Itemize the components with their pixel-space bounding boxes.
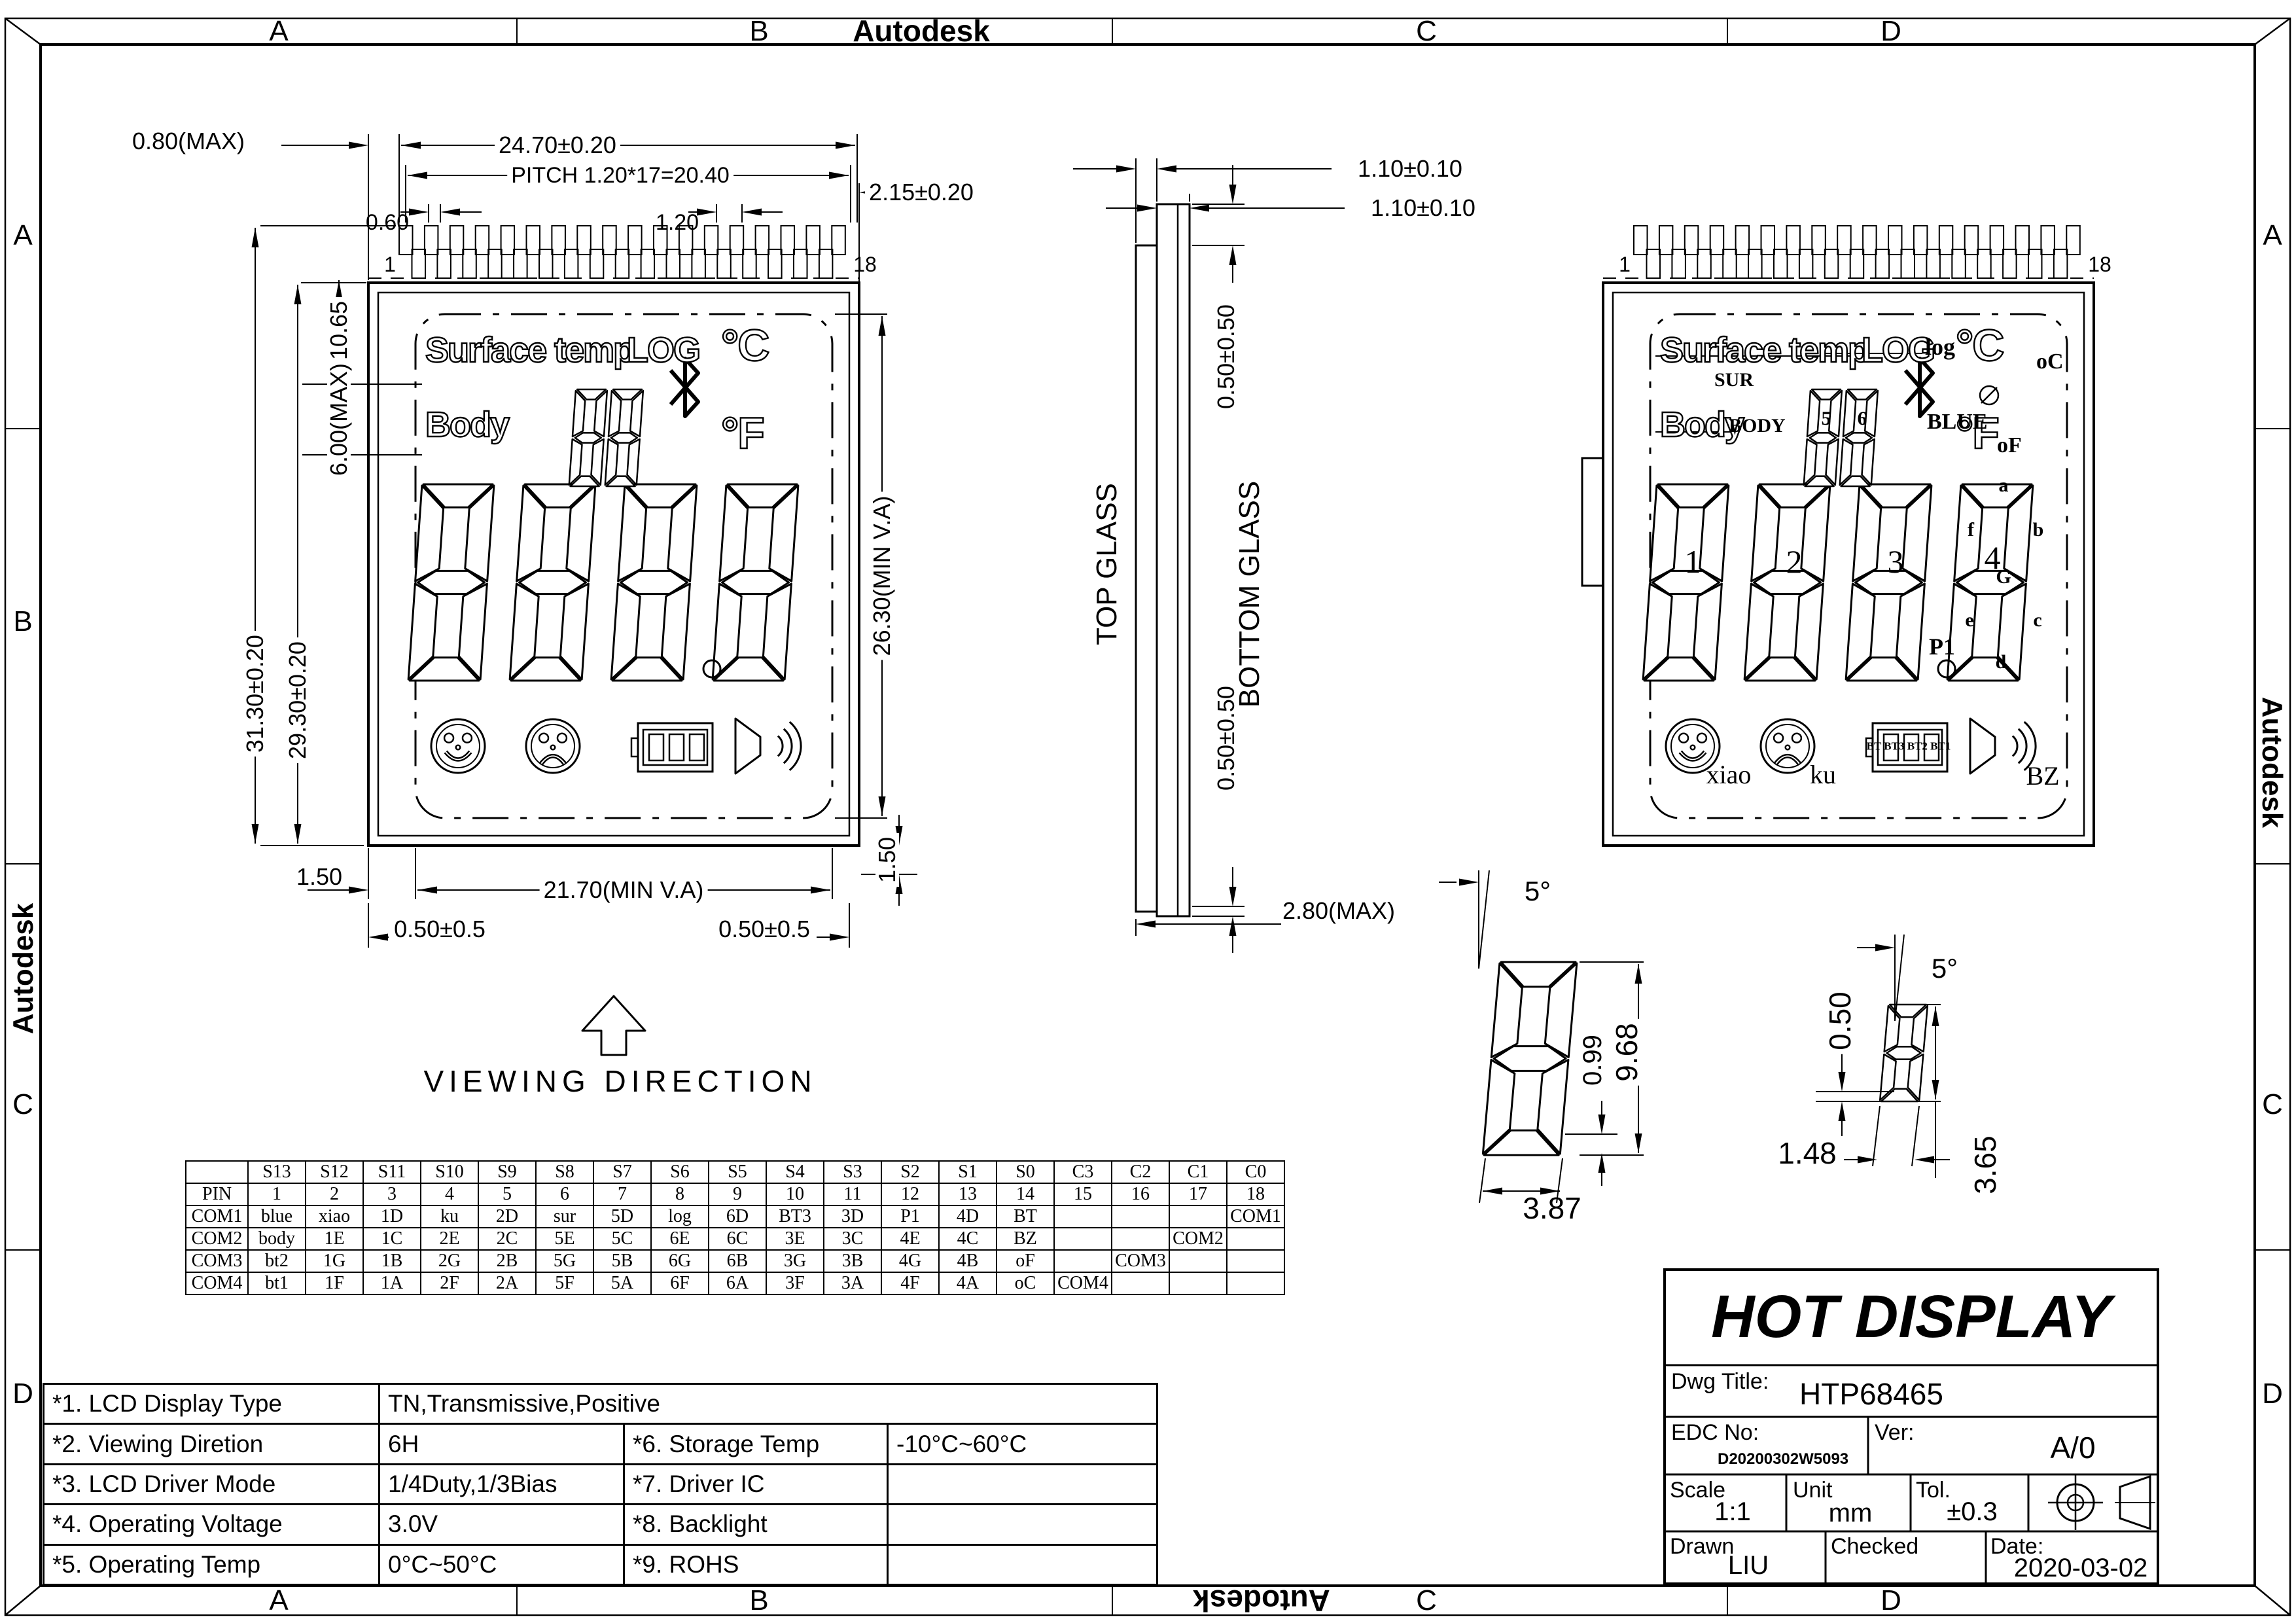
- pin-cell-4-12: 4G: [881, 1250, 939, 1272]
- pin-cell-3-0: COM2: [186, 1228, 248, 1250]
- pin-cell-3-2: 1E: [306, 1228, 363, 1250]
- pin-cell-5-4: 2F: [421, 1272, 478, 1294]
- pin-cell-4-17: [1169, 1250, 1227, 1272]
- pin-cell-4-14: oF: [997, 1250, 1054, 1272]
- pin-cell-1-8: 8: [651, 1183, 709, 1205]
- pin-cell-5-13: 4A: [939, 1272, 997, 1294]
- pin-cell-2-7: 5D: [593, 1205, 651, 1228]
- pin-cell-4-1: bt2: [248, 1250, 306, 1272]
- pin-cell-2-6: sur: [536, 1205, 593, 1228]
- pin-cell-2-14: BT: [997, 1205, 1054, 1228]
- pin-cell-2-10: BT3: [766, 1205, 824, 1228]
- pin-cell-4-5: 2B: [478, 1250, 536, 1272]
- pin-cell-0-12: S2: [881, 1161, 939, 1183]
- pin-table: S13S12S11S10S9S8S7S6S5S4S3S2S1S0C3C2C1C0…: [185, 1160, 1285, 1295]
- pin-cell-2-2: xiao: [306, 1205, 363, 1228]
- pin-assignment-table: S13S12S11S10S9S8S7S6S5S4S3S2S1S0C3C2C1C0…: [185, 1160, 1285, 1295]
- pin-cell-2-8: log: [651, 1205, 709, 1228]
- spec-table: *1. LCD Display TypeTN,Transmissive,Posi…: [43, 1383, 1158, 1586]
- pin-cell-1-14: 14: [997, 1183, 1054, 1205]
- pin-cell-1-2: 2: [306, 1183, 363, 1205]
- spec-cell: -10°C~60°C: [888, 1424, 1157, 1464]
- spec-cell: 0°C~50°C: [380, 1544, 624, 1584]
- spec-row: *1. LCD Display TypeTN,Transmissive,Posi…: [44, 1384, 1157, 1424]
- pin-cell-0-0: [186, 1161, 248, 1183]
- pin-cell-1-6: 6: [536, 1183, 593, 1205]
- pin-cell-5-3: 1A: [363, 1272, 421, 1294]
- pin-cell-5-1: bt1: [248, 1272, 306, 1294]
- spec-cell: *8. Backlight: [624, 1505, 888, 1544]
- spec-cell: *7. Driver IC: [624, 1464, 888, 1504]
- pin-cell-5-11: 3A: [824, 1272, 881, 1294]
- pin-cell-1-18: 18: [1227, 1183, 1284, 1205]
- pin-cell-0-9: S5: [709, 1161, 766, 1183]
- spec-cell: 6H: [380, 1424, 624, 1464]
- pin-cell-4-0: COM3: [186, 1250, 248, 1272]
- pin-cell-1-16: 16: [1112, 1183, 1169, 1205]
- pin-cell-3-3: 1C: [363, 1228, 421, 1250]
- pin-cell-0-16: C2: [1112, 1161, 1169, 1183]
- pin-cell-3-4: 2E: [421, 1228, 478, 1250]
- pin-cell-5-6: 5F: [536, 1272, 593, 1294]
- pin-cell-0-15: C3: [1054, 1161, 1112, 1183]
- pin-cell-2-3: 1D: [363, 1205, 421, 1228]
- pin-cell-5-9: 6A: [709, 1272, 766, 1294]
- pin-cell-2-1: blue: [248, 1205, 306, 1228]
- pin-cell-3-5: 2C: [478, 1228, 536, 1250]
- pin-cell-2-18: COM1: [1227, 1205, 1284, 1228]
- pin-cell-1-1: 1: [248, 1183, 306, 1205]
- pin-cell-2-9: 6D: [709, 1205, 766, 1228]
- pin-cell-5-0: COM4: [186, 1272, 248, 1294]
- spec-cell: *4. Operating Voltage: [44, 1505, 380, 1544]
- pin-cell-0-18: C0: [1227, 1161, 1284, 1183]
- pin-cell-0-1: S13: [248, 1161, 306, 1183]
- spec-row: *4. Operating Voltage3.0V*8. Backlight: [44, 1505, 1157, 1544]
- pin-table-row: COM1bluexiao1Dku2Dsur5Dlog6DBT33DP14DBTC…: [186, 1205, 1284, 1228]
- pin-cell-4-9: 6B: [709, 1250, 766, 1272]
- drawing-linework: [0, 0, 2296, 1623]
- pin-cell-3-17: COM2: [1169, 1228, 1227, 1250]
- pin-cell-5-17: [1169, 1272, 1227, 1294]
- spec-cell: *9. ROHS: [624, 1544, 888, 1584]
- pin-cell-3-8: 6E: [651, 1228, 709, 1250]
- pin-cell-4-11: 3B: [824, 1250, 881, 1272]
- pin-cell-1-4: 4: [421, 1183, 478, 1205]
- pin-cell-1-15: 15: [1054, 1183, 1112, 1205]
- pin-table-row: COM4bt11F1A2F2A5F5A6F6A3F3A4F4AoCCOM4: [186, 1272, 1284, 1294]
- pin-cell-3-11: 3C: [824, 1228, 881, 1250]
- pin-cell-4-7: 5B: [593, 1250, 651, 1272]
- pin-cell-1-3: 3: [363, 1183, 421, 1205]
- pin-cell-1-5: 5: [478, 1183, 536, 1205]
- spec-cell: [888, 1505, 1157, 1544]
- pin-cell-3-16: [1112, 1228, 1169, 1250]
- spec-cell: *5. Operating Temp: [44, 1544, 380, 1584]
- pin-cell-5-15: COM4: [1054, 1272, 1112, 1294]
- pin-cell-0-10: S4: [766, 1161, 824, 1183]
- pin-cell-4-2: 1G: [306, 1250, 363, 1272]
- pin-cell-0-5: S9: [478, 1161, 536, 1183]
- pin-cell-1-11: 11: [824, 1183, 881, 1205]
- pin-cell-0-17: C1: [1169, 1161, 1227, 1183]
- pin-cell-3-7: 5C: [593, 1228, 651, 1250]
- pin-cell-0-4: S10: [421, 1161, 478, 1183]
- pin-cell-3-1: body: [248, 1228, 306, 1250]
- pin-cell-1-10: 10: [766, 1183, 824, 1205]
- cad-sheet: { "sheet": { "watermark": "Autodesk", "z…: [0, 0, 2296, 1623]
- pin-cell-0-14: S0: [997, 1161, 1054, 1183]
- pin-cell-5-7: 5A: [593, 1272, 651, 1294]
- pin-cell-2-11: 3D: [824, 1205, 881, 1228]
- spec-cell: 1/4Duty,1/3Bias: [380, 1464, 624, 1504]
- pin-cell-4-15: [1054, 1250, 1112, 1272]
- pin-cell-3-9: 6C: [709, 1228, 766, 1250]
- spec-row: *5. Operating Temp0°C~50°C*9. ROHS: [44, 1544, 1157, 1584]
- pin-cell-0-3: S11: [363, 1161, 421, 1183]
- pin-cell-5-14: oC: [997, 1272, 1054, 1294]
- pin-cell-2-17: [1169, 1205, 1227, 1228]
- pin-cell-3-14: BZ: [997, 1228, 1054, 1250]
- pin-cell-5-10: 3F: [766, 1272, 824, 1294]
- spec-row: *2. Viewing Diretion6H*6. Storage Temp-1…: [44, 1424, 1157, 1464]
- pin-table-row: COM2body1E1C2E2C5E5C6E6C3E3C4E4CBZCOM2: [186, 1228, 1284, 1250]
- pin-cell-0-2: S12: [306, 1161, 363, 1183]
- pin-table-row: PIN123456789101112131415161718: [186, 1183, 1284, 1205]
- pin-cell-1-12: 12: [881, 1183, 939, 1205]
- spec-cell: *1. LCD Display Type: [44, 1384, 380, 1424]
- pin-cell-0-11: S3: [824, 1161, 881, 1183]
- pin-cell-4-10: 3G: [766, 1250, 824, 1272]
- pin-cell-2-4: ku: [421, 1205, 478, 1228]
- spec-cell: [888, 1544, 1157, 1584]
- spec-cell: *3. LCD Driver Mode: [44, 1464, 380, 1504]
- pin-cell-5-18: [1227, 1272, 1284, 1294]
- spec-cell: 3.0V: [380, 1505, 624, 1544]
- pin-table-row: S13S12S11S10S9S8S7S6S5S4S3S2S1S0C3C2C1C0: [186, 1161, 1284, 1183]
- pin-cell-0-6: S8: [536, 1161, 593, 1183]
- pin-cell-0-7: S7: [593, 1161, 651, 1183]
- pin-cell-5-2: 1F: [306, 1272, 363, 1294]
- pin-cell-3-10: 3E: [766, 1228, 824, 1250]
- pin-cell-0-8: S6: [651, 1161, 709, 1183]
- pin-cell-4-16: COM3: [1112, 1250, 1169, 1272]
- pin-cell-2-16: [1112, 1205, 1169, 1228]
- pin-cell-3-18: [1227, 1228, 1284, 1250]
- pin-cell-3-15: [1054, 1228, 1112, 1250]
- pin-cell-4-13: 4B: [939, 1250, 997, 1272]
- pin-cell-2-0: COM1: [186, 1205, 248, 1228]
- pin-cell-1-13: 13: [939, 1183, 997, 1205]
- pin-cell-2-12: P1: [881, 1205, 939, 1228]
- pin-cell-3-6: 5E: [536, 1228, 593, 1250]
- pin-cell-4-8: 6G: [651, 1250, 709, 1272]
- pin-cell-5-8: 6F: [651, 1272, 709, 1294]
- pin-cell-3-12: 4E: [881, 1228, 939, 1250]
- spec-cell: TN,Transmissive,Positive: [380, 1384, 1157, 1424]
- pin-cell-1-0: PIN: [186, 1183, 248, 1205]
- spec-cell: [888, 1464, 1157, 1504]
- pin-cell-0-13: S1: [939, 1161, 997, 1183]
- pin-cell-4-18: [1227, 1250, 1284, 1272]
- pin-cell-4-6: 5G: [536, 1250, 593, 1272]
- spec-cell: *2. Viewing Diretion: [44, 1424, 380, 1464]
- spec-row: *3. LCD Driver Mode1/4Duty,1/3Bias*7. Dr…: [44, 1464, 1157, 1504]
- pin-cell-5-16: [1112, 1272, 1169, 1294]
- pin-cell-1-9: 9: [709, 1183, 766, 1205]
- pin-cell-1-7: 7: [593, 1183, 651, 1205]
- pin-cell-4-4: 2G: [421, 1250, 478, 1272]
- spec-table-grid: *1. LCD Display TypeTN,Transmissive,Posi…: [43, 1383, 1158, 1586]
- pin-cell-5-12: 4F: [881, 1272, 939, 1294]
- pin-cell-2-13: 4D: [939, 1205, 997, 1228]
- spec-cell: *6. Storage Temp: [624, 1424, 888, 1464]
- pin-cell-2-5: 2D: [478, 1205, 536, 1228]
- pin-cell-3-13: 4C: [939, 1228, 997, 1250]
- pin-cell-4-3: 1B: [363, 1250, 421, 1272]
- pin-cell-5-5: 2A: [478, 1272, 536, 1294]
- pin-cell-1-17: 17: [1169, 1183, 1227, 1205]
- pin-table-row: COM3bt21G1B2G2B5G5B6G6B3G3B4G4BoFCOM3: [186, 1250, 1284, 1272]
- pin-cell-2-15: [1054, 1205, 1112, 1228]
